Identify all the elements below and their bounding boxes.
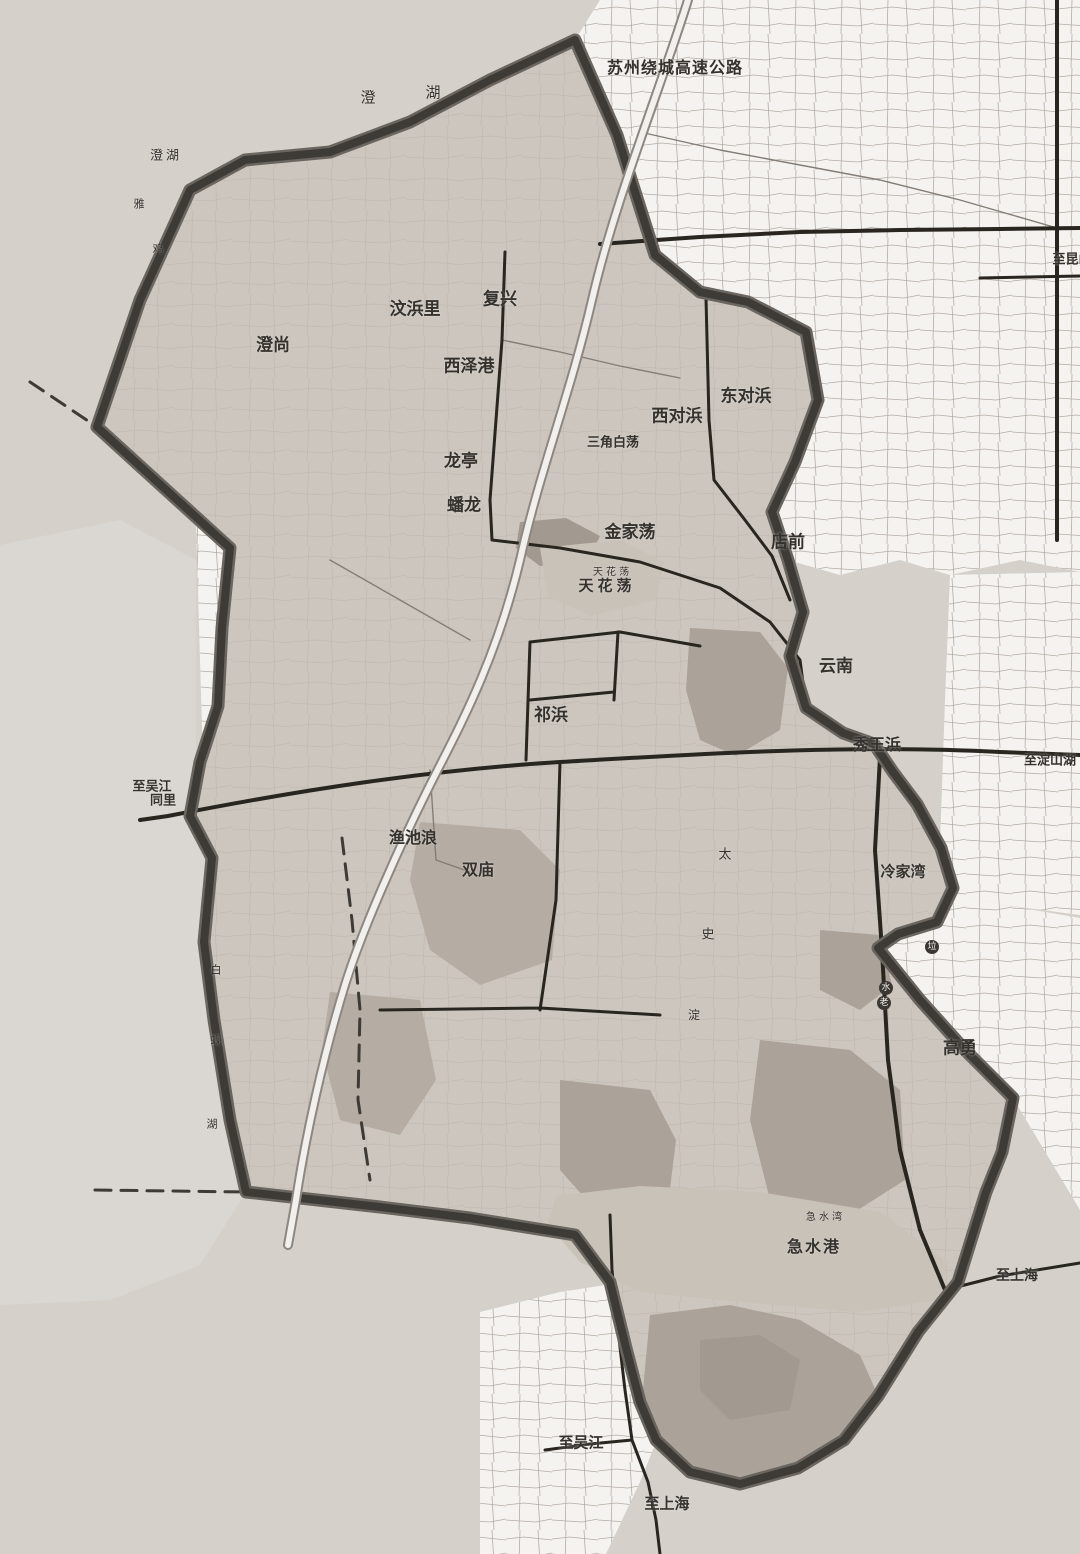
map-canvas	[0, 0, 1080, 1554]
map: 苏州绕城高速公路澄湖澄湖雅鸡汶浜里复兴澄尚西泽港东对浜西对浜三角白荡龙亭蟠龙金家…	[0, 0, 1080, 1554]
